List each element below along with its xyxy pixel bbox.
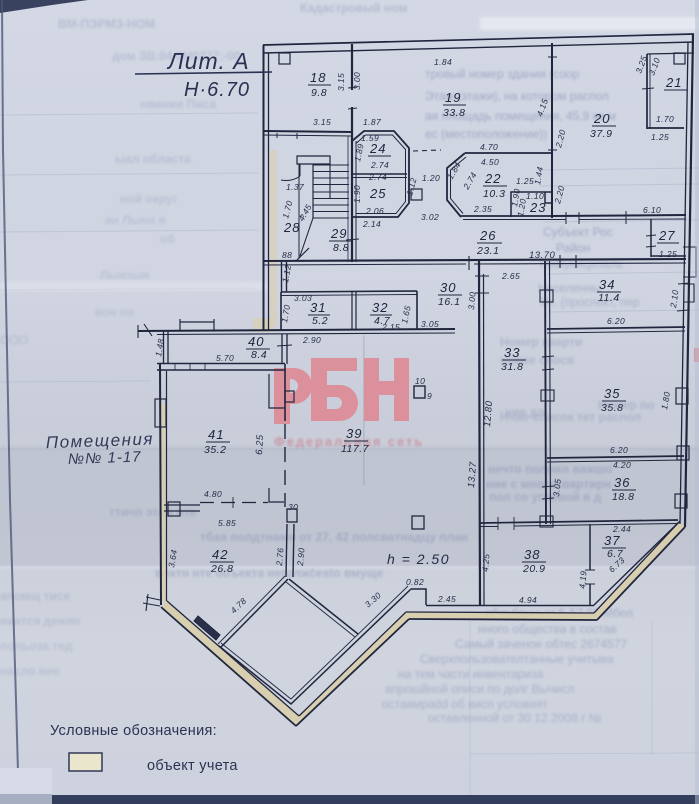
svg-text:26.8: 26.8 bbox=[210, 563, 233, 575]
svg-text:41: 41 bbox=[208, 427, 224, 442]
svg-text:об: об bbox=[160, 232, 175, 246]
svg-text:4.50: 4.50 bbox=[481, 157, 499, 167]
svg-text:20: 20 bbox=[593, 111, 610, 126]
svg-text:2.44: 2.44 bbox=[612, 524, 631, 534]
svg-text:наятся денло: наятся денло bbox=[0, 614, 80, 628]
svg-text:11.4: 11.4 bbox=[598, 292, 620, 304]
svg-text:31: 31 bbox=[310, 300, 326, 315]
svg-text:27: 27 bbox=[658, 228, 675, 243]
svg-text:8.8: 8.8 bbox=[333, 242, 349, 254]
svg-text:9.8: 9.8 bbox=[311, 87, 327, 99]
svg-text:1.59: 1.59 bbox=[361, 133, 379, 143]
svg-text:2.74: 2.74 bbox=[368, 172, 387, 182]
svg-text:3.00: 3.00 bbox=[352, 72, 362, 90]
svg-text:Сверхпользователтанные учитыв: Сверхпользователтанные учитыва bbox=[420, 652, 614, 666]
svg-text:37.9: 37.9 bbox=[590, 128, 612, 140]
svg-text:на тем части инвентариза: на тем части инвентариза bbox=[398, 667, 543, 681]
svg-text:1.70: 1.70 bbox=[656, 114, 674, 124]
svg-text:ВМ-ПЭРМЗ-НОМ: ВМ-ПЭРМЗ-НОМ bbox=[58, 17, 155, 31]
svg-text:3.15: 3.15 bbox=[336, 73, 346, 91]
svg-text:13.70: 13.70 bbox=[529, 250, 555, 261]
svg-text:10.3: 10.3 bbox=[483, 188, 505, 200]
svg-text:22: 22 bbox=[484, 171, 501, 186]
svg-text:31.8: 31.8 bbox=[501, 361, 523, 373]
svg-text:30: 30 bbox=[288, 502, 298, 512]
svg-text:18.8: 18.8 bbox=[612, 491, 634, 503]
svg-text:19: 19 bbox=[445, 90, 461, 105]
svg-text:3.02: 3.02 bbox=[421, 212, 439, 222]
svg-text:37: 37 bbox=[604, 533, 620, 548]
svg-text:апрошйной описи по долг Вычи: апрошйной описи по долг Вычисл bbox=[385, 682, 574, 696]
svg-text:28: 28 bbox=[283, 220, 300, 235]
svg-text:2.45: 2.45 bbox=[437, 594, 456, 604]
svg-text:32: 32 bbox=[372, 300, 388, 315]
svg-text:3.00: 3.00 bbox=[466, 291, 478, 310]
svg-text:ес (местоположение)): ес (местоположение)) bbox=[425, 127, 547, 141]
svg-text:88: 88 bbox=[282, 250, 292, 260]
svg-text:39: 39 bbox=[346, 426, 362, 441]
svg-text:1.25: 1.25 bbox=[659, 249, 677, 259]
svg-text:2.90: 2.90 bbox=[302, 335, 321, 345]
svg-text:12.80: 12.80 bbox=[482, 400, 495, 427]
svg-text:18: 18 bbox=[310, 70, 326, 85]
svg-text:34: 34 bbox=[599, 277, 615, 292]
svg-text:1.37: 1.37 bbox=[286, 182, 304, 192]
svg-text:9: 9 bbox=[427, 391, 432, 401]
svg-text:24: 24 bbox=[369, 141, 386, 156]
svg-text:ыал областа: ыал областа bbox=[115, 152, 191, 166]
svg-text:4.80: 4.80 bbox=[204, 489, 222, 499]
svg-text:3.15: 3.15 bbox=[313, 117, 331, 127]
svg-text:5.85: 5.85 bbox=[218, 518, 236, 528]
svg-text:ной округ: ной округ bbox=[120, 192, 177, 206]
svg-text:35.2: 35.2 bbox=[204, 444, 226, 456]
svg-text:Район: Район bbox=[556, 241, 590, 255]
svg-text:6.20: 6.20 bbox=[607, 316, 625, 326]
svg-text:ООО: ООО bbox=[0, 333, 28, 347]
svg-text:13.27: 13.27 bbox=[466, 461, 479, 488]
svg-text:33.8: 33.8 bbox=[443, 107, 465, 119]
svg-text:2.06: 2.06 bbox=[365, 206, 384, 216]
svg-text:33: 33 bbox=[504, 345, 520, 360]
svg-text:23.1: 23.1 bbox=[476, 245, 499, 257]
svg-text:0.82: 0.82 bbox=[406, 577, 424, 587]
svg-text:3.03: 3.03 bbox=[294, 293, 312, 303]
svg-text:4.94: 4.94 bbox=[519, 595, 537, 605]
svg-text:оставмpadd об висп условият: оставмpadd об висп условият bbox=[382, 697, 548, 711]
svg-text:Самый заченое обтес 2674577: Самый заченое обтес 2674577 bbox=[455, 637, 627, 651]
svg-text:1.20: 1.20 bbox=[422, 173, 440, 183]
svg-text:1.87: 1.87 bbox=[363, 117, 381, 127]
svg-text:5.2: 5.2 bbox=[312, 315, 328, 327]
svg-text:8.4: 8.4 bbox=[251, 349, 267, 361]
svg-text:6.20: 6.20 bbox=[610, 445, 628, 455]
svg-text:тровый номер здания (соор: тровый номер здания (соор bbox=[425, 67, 580, 81]
svg-text:h = 2.50: h = 2.50 bbox=[387, 551, 450, 567]
svg-text:оставленной от 30 12 2008 г №: оставленной от 30 12 2008 г № bbox=[428, 711, 602, 725]
svg-text:Субъект Рос: Субъект Рос bbox=[543, 225, 613, 239]
svg-text:38: 38 bbox=[524, 547, 540, 562]
svg-text:25: 25 bbox=[369, 186, 386, 201]
svg-text:21: 21 bbox=[665, 75, 682, 90]
svg-text:1.25: 1.25 bbox=[651, 132, 669, 142]
svg-text:ан Лыня в: ан Лыня в bbox=[105, 213, 166, 227]
svg-text:Лит. А: Лит. А bbox=[166, 48, 250, 74]
svg-text:2.15: 2.15 bbox=[381, 322, 400, 332]
svg-text:апомщ тисе: апомщ тисе bbox=[0, 589, 70, 603]
svg-text:40: 40 bbox=[248, 334, 264, 349]
svg-text:2.90: 2.90 bbox=[295, 547, 307, 567]
svg-text:23: 23 bbox=[529, 200, 546, 215]
svg-text:Кадастровый ном: Кадастровый ном bbox=[300, 1, 407, 15]
svg-text:30: 30 bbox=[440, 280, 456, 295]
svg-text:4.70: 4.70 bbox=[480, 142, 498, 152]
svg-text:42: 42 bbox=[212, 547, 228, 562]
svg-text:№№ 1-17: №№ 1-17 bbox=[68, 448, 142, 468]
svg-text:Условные обозначения:: Условные обозначения: bbox=[50, 723, 217, 739]
svg-text:ние дл: ние дл bbox=[505, 405, 545, 419]
svg-text:1.25: 1.25 bbox=[516, 176, 534, 186]
svg-text:2.35: 2.35 bbox=[473, 204, 492, 214]
svg-text:29: 29 bbox=[330, 226, 347, 241]
svg-text:35.8: 35.8 bbox=[601, 402, 623, 414]
svg-text:вон на: вон на bbox=[95, 305, 134, 319]
svg-text:Лынзыя: Лынзыя bbox=[100, 268, 149, 282]
svg-text:3.05: 3.05 bbox=[551, 478, 563, 497]
svg-text:2.76: 2.76 bbox=[274, 547, 286, 567]
svg-text:польоза тед: польоза тед bbox=[0, 639, 73, 653]
svg-text:6.10: 6.10 bbox=[643, 205, 661, 215]
svg-text:4.25: 4.25 bbox=[480, 553, 492, 572]
svg-text:Населенны: Населенны bbox=[538, 281, 601, 295]
svg-text:3.05: 3.05 bbox=[421, 319, 439, 329]
svg-text:1.90: 1.90 bbox=[352, 185, 362, 203]
svg-text:2.74: 2.74 bbox=[370, 160, 389, 170]
svg-text:4.20: 4.20 bbox=[613, 460, 631, 470]
svg-text:2.14: 2.14 bbox=[362, 219, 381, 229]
svg-text:36: 36 bbox=[614, 475, 630, 490]
svg-text:1.10: 1.10 bbox=[526, 191, 544, 201]
svg-text:6.25: 6.25 bbox=[254, 434, 266, 455]
svg-text:2.65: 2.65 bbox=[501, 271, 520, 281]
svg-text:объект учета: объект учета bbox=[147, 758, 238, 774]
svg-text:10: 10 bbox=[415, 376, 425, 386]
svg-text:16.1: 16.1 bbox=[438, 296, 460, 308]
svg-text:нного общества в состав: нного общества в состав bbox=[478, 622, 617, 636]
svg-text:117.7: 117.7 bbox=[341, 443, 370, 455]
svg-text:20.9: 20.9 bbox=[522, 563, 545, 575]
svg-text:Н·6.70: Н·6.70 bbox=[184, 79, 250, 101]
svg-text:26: 26 bbox=[479, 228, 496, 243]
svg-text:5.70: 5.70 bbox=[216, 353, 234, 363]
svg-text:1.84: 1.84 bbox=[434, 57, 452, 67]
svg-text:насло вен: насло вен bbox=[0, 664, 60, 678]
svg-text:35: 35 bbox=[604, 386, 620, 401]
svg-text:Ул. (проспект, пер: Ул. (проспект, пер bbox=[540, 295, 640, 309]
svg-text:4.19: 4.19 bbox=[577, 570, 589, 589]
